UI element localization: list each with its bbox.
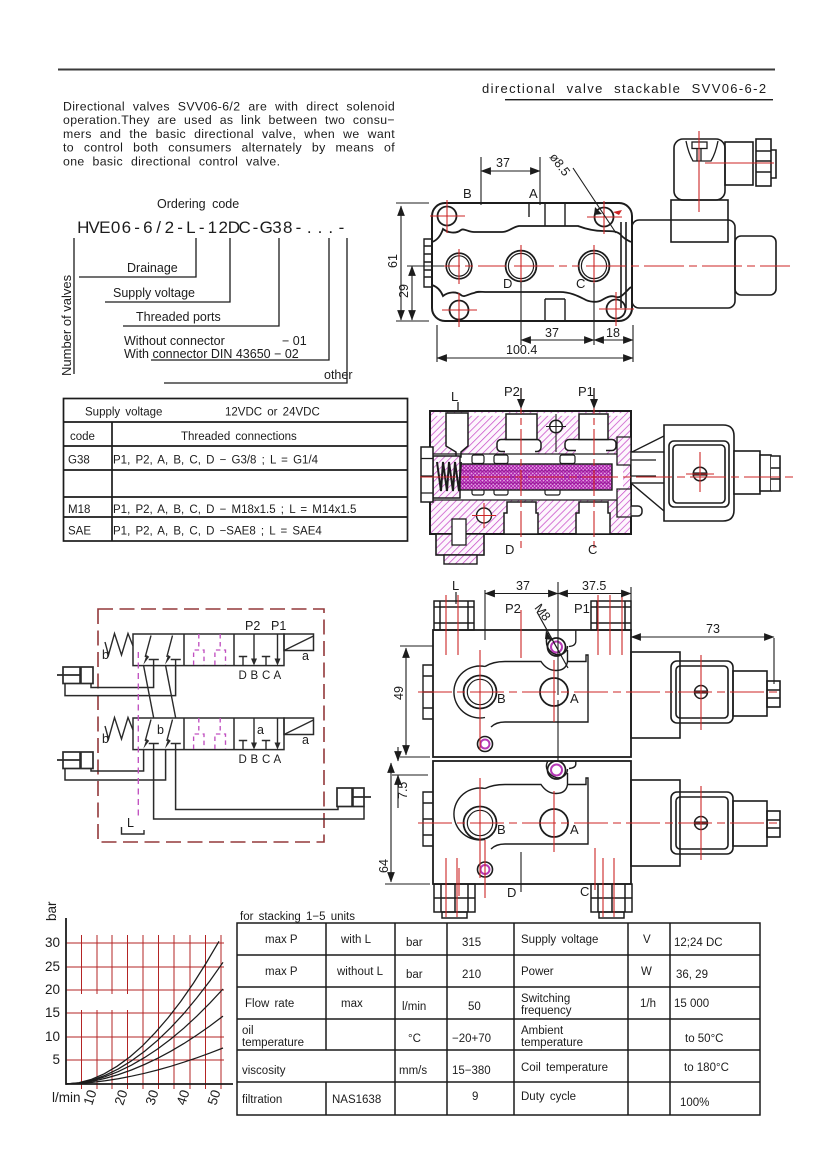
svg-text:A: A [570, 822, 579, 837]
svg-text:15−380: 15−380 [452, 1065, 491, 1077]
svg-text:10: 10 [45, 1029, 60, 1044]
svg-text:Ordering code: Ordering code [157, 197, 239, 211]
svg-text:64: 64 [377, 859, 391, 873]
svg-text:filtration: filtration [242, 1094, 282, 1106]
svg-text:Supply voltage: Supply voltage [521, 934, 598, 946]
svg-text:73: 73 [706, 622, 720, 636]
svg-text:L: L [127, 816, 134, 830]
svg-text:P2: P2 [504, 384, 520, 399]
svg-text:B: B [251, 670, 259, 682]
svg-text:frequency: frequency [521, 1005, 572, 1017]
svg-text:max P: max P [265, 934, 298, 946]
svg-text:15 000: 15 000 [674, 998, 709, 1010]
svg-text:50: 50 [468, 1001, 481, 1013]
svg-text:− 01: − 01 [282, 334, 307, 348]
svg-text:temperature: temperature [521, 1037, 583, 1049]
svg-text:Switching: Switching [521, 993, 570, 1005]
svg-text:Power: Power [521, 966, 554, 978]
svg-text:D: D [507, 885, 516, 900]
svg-text:code: code [70, 431, 95, 443]
svg-text:A: A [274, 670, 282, 682]
svg-text:15: 15 [45, 1005, 60, 1020]
svg-text:P1, P2, A, B, C, D − M18x1.5 ;: P1, P2, A, B, C, D − M18x1.5 ; L = M14x1… [113, 504, 356, 516]
svg-text:HVE06-6/2-L-12DC-G38-...-: HVE06-6/2-L-12DC-G38-...- [77, 218, 344, 237]
svg-text:D: D [505, 542, 514, 557]
svg-text:A: A [274, 754, 282, 766]
svg-text:Threaded ports: Threaded ports [136, 310, 221, 324]
svg-text:C: C [580, 884, 589, 899]
svg-text:b: b [102, 732, 109, 746]
svg-text:20: 20 [112, 1088, 131, 1107]
svg-text:max: max [341, 998, 363, 1010]
svg-text:Coil temperature: Coil temperature [521, 1062, 608, 1074]
svg-text:b: b [102, 648, 109, 662]
svg-text:25: 25 [45, 959, 60, 974]
svg-text:With connector DIN 43650 − 02: With connector DIN 43650 − 02 [124, 347, 299, 361]
svg-text:P1, P2, A, B, C, D −SAE8 ; L =: P1, P2, A, B, C, D −SAE8 ; L = SAE4 [113, 526, 322, 538]
svg-text:12;24 DC: 12;24 DC [674, 937, 723, 949]
svg-text:100%: 100% [680, 1097, 709, 1109]
svg-text:°C: °C [408, 1033, 421, 1045]
svg-text:B: B [463, 186, 472, 201]
svg-text:P1: P1 [271, 619, 286, 633]
svg-text:37: 37 [496, 156, 510, 170]
svg-text:30: 30 [143, 1088, 162, 1107]
svg-text:l/min: l/min [402, 1001, 426, 1013]
svg-text:a: a [302, 733, 309, 747]
svg-text:P2: P2 [245, 619, 260, 633]
svg-text:one basic directional control: one basic directional control valve. [63, 154, 280, 168]
svg-text:40: 40 [174, 1088, 193, 1107]
svg-text:W: W [641, 966, 652, 978]
svg-text:Ambient: Ambient [521, 1025, 564, 1037]
svg-text:Without connector: Without connector [124, 334, 225, 348]
svg-text:temperature: temperature [242, 1037, 304, 1049]
svg-text:other: other [324, 368, 353, 382]
svg-text:100.4: 100.4 [506, 343, 537, 357]
svg-text:M8: M8 [532, 601, 554, 623]
svg-text:7.5: 7.5 [396, 782, 410, 799]
svg-text:P1: P1 [574, 601, 590, 616]
svg-text:to 180°C: to 180°C [684, 1062, 729, 1074]
svg-text:with L: with L [340, 934, 372, 946]
svg-text:max P: max P [265, 966, 298, 978]
svg-text:C: C [262, 754, 270, 766]
svg-text:D: D [503, 276, 512, 291]
svg-text:1/h: 1/h [640, 998, 656, 1010]
svg-text:Number of valves: Number of valves [59, 274, 74, 376]
svg-text:Threaded connections: Threaded connections [181, 431, 297, 443]
svg-text:V: V [643, 934, 651, 946]
svg-text:37: 37 [545, 326, 559, 340]
svg-text:P2: P2 [505, 601, 521, 616]
svg-text:A: A [570, 691, 579, 706]
svg-text:L: L [452, 578, 459, 593]
svg-text:Duty cycle: Duty cycle [521, 1091, 576, 1103]
svg-text:10: 10 [81, 1088, 100, 1107]
svg-text:29: 29 [397, 284, 411, 298]
svg-text:D: D [239, 754, 247, 766]
svg-text:C: C [576, 276, 585, 291]
svg-text:a: a [257, 723, 264, 737]
svg-text:l/min: l/min [52, 1090, 81, 1105]
svg-text:P1, P2, A, B, C, D − G3/8 ; L: P1, P2, A, B, C, D − G3/8 ; L = G1/4 [113, 455, 319, 467]
svg-text:oil: oil [242, 1025, 254, 1037]
svg-text:61: 61 [386, 254, 400, 268]
svg-text:D: D [239, 670, 247, 682]
svg-text:P1: P1 [578, 384, 594, 399]
svg-text:A: A [529, 186, 538, 201]
svg-text:B: B [251, 754, 259, 766]
svg-text:operation.They are used as lin: operation.They are used as link between … [63, 113, 395, 127]
svg-text:Flow rate: Flow rate [245, 998, 294, 1010]
svg-text:bar: bar [44, 901, 59, 921]
svg-text:315: 315 [462, 937, 481, 949]
svg-text:37: 37 [516, 579, 530, 593]
svg-text:M18: M18 [68, 504, 90, 516]
svg-text:210: 210 [462, 969, 481, 981]
svg-text:for stacking 1−5 units: for stacking 1−5 units [240, 911, 355, 923]
svg-text:5: 5 [52, 1052, 60, 1067]
svg-text:directional valve stackable SV: directional valve stackable SVV06-6-2 [482, 81, 767, 96]
svg-text:C: C [262, 670, 270, 682]
svg-text:37.5: 37.5 [582, 579, 606, 593]
svg-text:mm/s: mm/s [399, 1065, 427, 1077]
svg-text:Drainage: Drainage [127, 261, 178, 275]
svg-text:B: B [497, 691, 506, 706]
svg-text:12VDC or 24VDC: 12VDC or 24VDC [225, 407, 320, 419]
svg-text:NAS1638: NAS1638 [332, 1094, 381, 1106]
svg-text:a: a [302, 649, 309, 663]
svg-text:18: 18 [606, 326, 620, 340]
svg-text:viscosity: viscosity [242, 1065, 286, 1077]
svg-text:to control both consumers alte: to control both consumers alternately by… [63, 141, 395, 155]
svg-text:49: 49 [392, 686, 406, 700]
svg-text:−20+70: −20+70 [452, 1033, 491, 1045]
svg-text:C: C [588, 542, 597, 557]
svg-text:mers and the basic directional: mers and the basic directional valve, wh… [63, 127, 395, 141]
svg-text:L: L [451, 389, 458, 404]
svg-text:20: 20 [45, 982, 60, 997]
svg-text:G38: G38 [68, 455, 90, 467]
svg-text:ø8.5: ø8.5 [547, 150, 573, 178]
svg-text:b: b [157, 723, 164, 737]
svg-text:Supply voltage: Supply voltage [85, 407, 162, 419]
svg-text:50: 50 [205, 1088, 224, 1107]
svg-text:Directional valves SVV06-6/2 a: Directional valves SVV06-6/2 are with di… [63, 100, 395, 114]
svg-text:36, 29: 36, 29 [676, 969, 708, 981]
svg-text:SAE: SAE [68, 526, 91, 538]
svg-text:without L: without L [336, 966, 384, 978]
svg-text:Supply voltage: Supply voltage [113, 286, 195, 300]
svg-text:30: 30 [45, 935, 60, 950]
svg-text:bar: bar [406, 969, 423, 981]
svg-text:to 50°C: to 50°C [685, 1033, 723, 1045]
svg-text:B: B [497, 822, 506, 837]
svg-text:bar: bar [406, 937, 423, 949]
svg-text:9: 9 [472, 1091, 478, 1103]
